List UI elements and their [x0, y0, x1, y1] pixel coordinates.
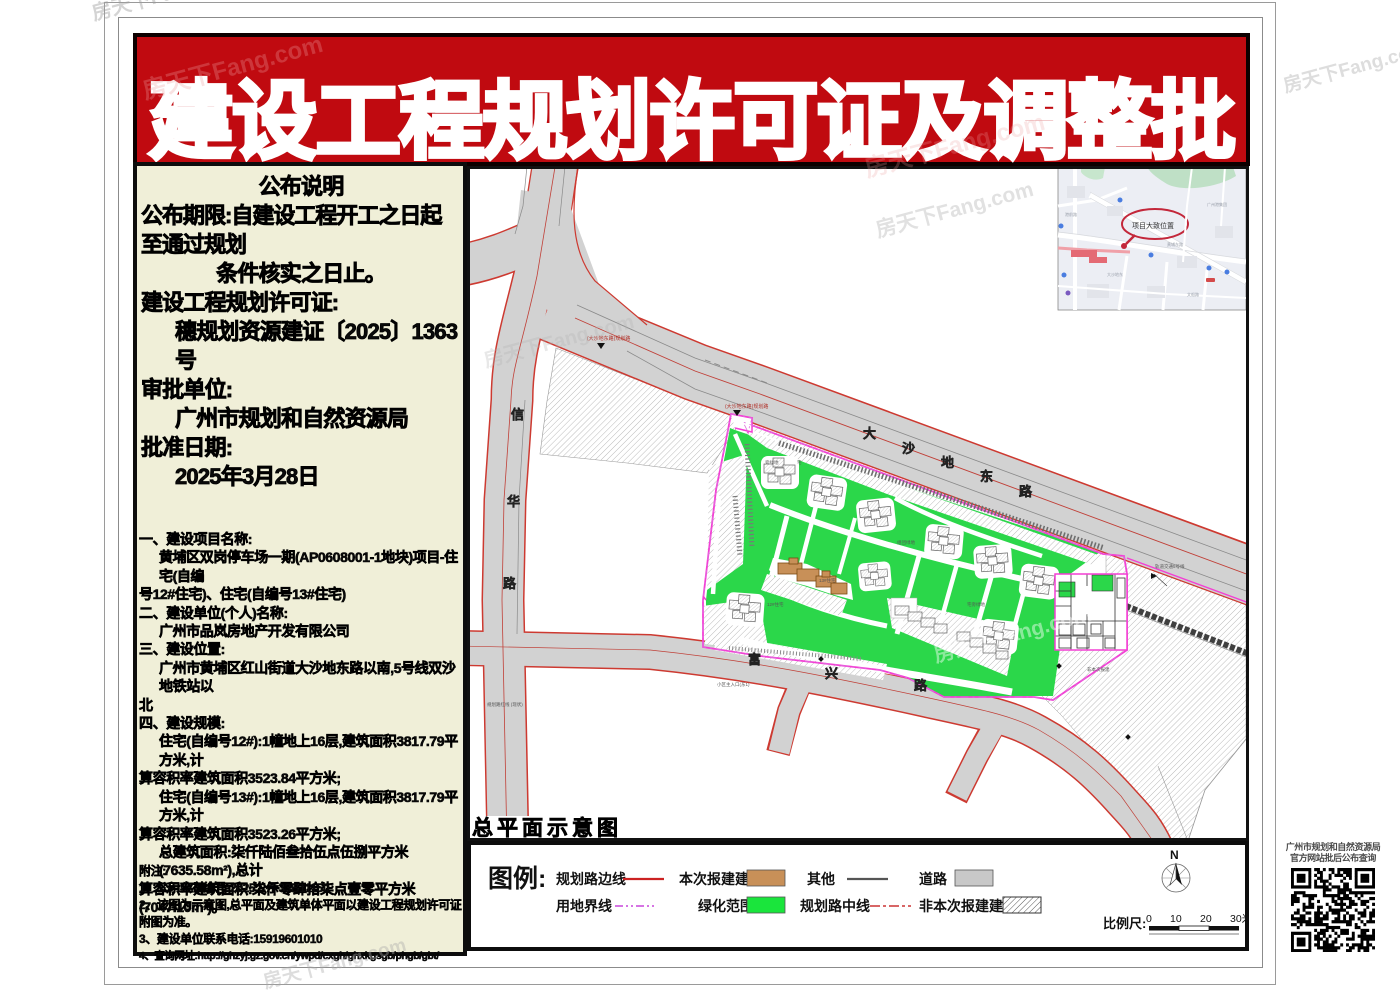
svg-text:路: 路 — [1019, 484, 1033, 499]
svg-text:信: 信 — [511, 407, 524, 422]
svg-text:规划路中线: 规划路中线 — [800, 898, 870, 914]
svg-text:港前路: 港前路 — [1065, 211, 1077, 217]
svg-text:路: 路 — [914, 678, 928, 693]
svg-text:兴: 兴 — [825, 666, 838, 681]
svg-text:东: 东 — [980, 469, 993, 484]
svg-text:比例尺:: 比例尺: — [1103, 916, 1146, 931]
svg-text:组团绿地: 组团绿地 — [897, 539, 915, 546]
svg-text:非本次报建建筑: 非本次报建建筑 — [919, 898, 1017, 914]
svg-text:30米: 30米 — [1230, 912, 1249, 925]
svg-text:小区主入口(东1): 小区主入口(东1) — [717, 681, 750, 688]
svg-text:非本次报建: 非本次报建 — [1087, 666, 1110, 673]
svg-text:大: 大 — [863, 426, 876, 441]
svg-text:华: 华 — [507, 494, 520, 509]
svg-text:富: 富 — [748, 652, 761, 667]
svg-text:规划路红线 (现状): 规划路红线 (现状) — [487, 701, 523, 708]
svg-text:宅旁绿地: 宅旁绿地 — [967, 601, 985, 608]
svg-text:N: N — [1170, 848, 1179, 862]
svg-text:图例:: 图例: — [488, 865, 546, 893]
svg-text:(大沙地东路)规划路: (大沙地东路)规划路 — [587, 335, 630, 342]
svg-text:黄埔东路: 黄埔东路 — [1167, 241, 1183, 247]
svg-text:沙: 沙 — [902, 441, 915, 456]
svg-text:规划路边线: 规划路边线 — [556, 871, 626, 887]
svg-text:其他: 其他 — [807, 871, 835, 887]
svg-text:0: 0 — [1146, 913, 1152, 925]
svg-text:路: 路 — [503, 576, 517, 591]
svg-text:大沙地东: 大沙地东 — [1107, 271, 1123, 277]
svg-text:广州港集团: 广州港集团 — [1207, 201, 1227, 207]
svg-text:项目大致位置: 项目大致位置 — [1132, 221, 1174, 230]
svg-text:文船路: 文船路 — [1187, 291, 1199, 297]
svg-text:总平面示意图: 总平面示意图 — [472, 816, 622, 840]
svg-text:绿化范围: 绿化范围 — [698, 898, 754, 914]
svg-text:10: 10 — [1170, 913, 1182, 925]
svg-text:20: 20 — [1200, 913, 1212, 925]
svg-text:(大沙地东路)规划路: (大沙地东路)规划路 — [725, 403, 768, 410]
svg-text:用地界线: 用地界线 — [556, 898, 612, 914]
svg-text:12#住宅: 12#住宅 — [767, 601, 784, 607]
svg-text:地: 地 — [941, 455, 954, 470]
svg-text:道路: 道路 — [919, 871, 948, 887]
svg-text:13#住宅: 13#住宅 — [819, 577, 836, 583]
svg-text:轨道交通5号线: 轨道交通5号线 — [1155, 563, 1185, 570]
